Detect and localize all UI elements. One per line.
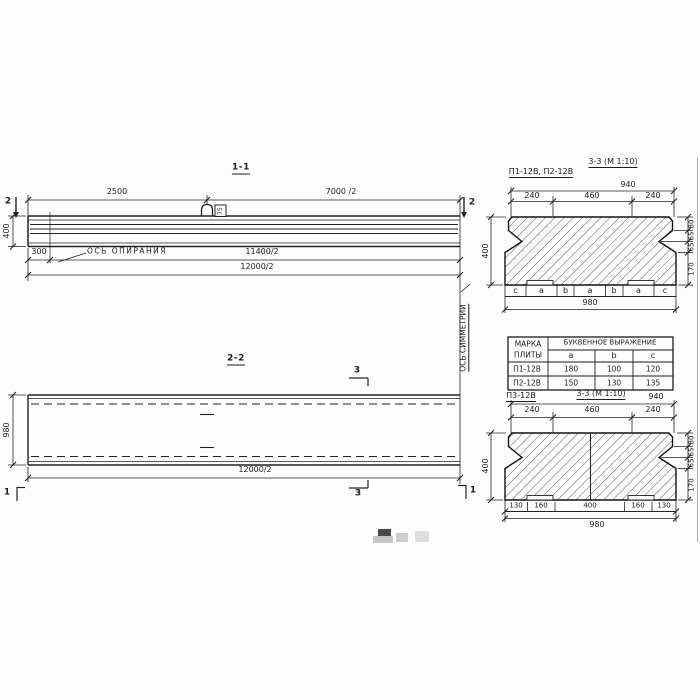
dim-240-p3a: 240 xyxy=(524,406,539,414)
dim-980-p3: 980 xyxy=(589,521,604,529)
dim-240-b: 240 xyxy=(645,192,660,200)
dim-160-a: 160 xyxy=(534,503,547,510)
dim-65b-p12: 65 xyxy=(689,243,696,252)
dim-11400-2: 11400/2 xyxy=(245,248,278,256)
section-3-3-title-top: 3-3 (М 1:10) xyxy=(588,158,637,168)
table-col-a: a xyxy=(569,352,574,360)
dim-400-p3: 400 xyxy=(482,458,490,473)
section-2-2-title: 2-2 xyxy=(227,355,245,366)
drawing-linework xyxy=(0,0,700,700)
table-col1-header-line1: МАРКА xyxy=(515,340,542,348)
dim-980-width: 980 xyxy=(3,422,11,437)
dim-160-b: 160 xyxy=(631,503,644,510)
letter-c1: c xyxy=(513,287,517,295)
dim-80-p3: 80 xyxy=(689,436,696,445)
dim-400-bottom: 400 xyxy=(583,503,596,510)
dim-65a-p3: 65 xyxy=(689,448,696,457)
table-row2-b: 130 xyxy=(607,379,621,387)
dim-130-a: 130 xyxy=(509,503,522,510)
table-row2-c: 135 xyxy=(646,379,660,387)
dim-65b-p3: 65 xyxy=(689,459,696,468)
dim-940-top: 940 xyxy=(620,181,635,189)
section-1-1-title: 1-1 xyxy=(232,164,250,175)
table-col-b: b xyxy=(611,352,616,360)
support-axis-label: ОСЬ ОПИРАНИЯ xyxy=(87,247,167,255)
dim-170-p12: 170 xyxy=(689,262,696,275)
dim-170-p3: 170 xyxy=(689,478,696,491)
letter-a1: a xyxy=(539,287,544,295)
table-row1-c: 120 xyxy=(646,365,660,373)
dim-80-p12: 80 xyxy=(689,220,696,229)
letter-c2: c xyxy=(663,287,667,295)
lifting-loop-icon xyxy=(202,205,213,217)
plate-mark-p3: П3-12В xyxy=(506,392,536,402)
dim-940-p3: 940 xyxy=(648,393,663,401)
plate-marks-p12: П1-12В, П2-12В xyxy=(509,168,573,178)
table-group-header: БУКВЕННОЕ ВЫРАЖЕНИЕ xyxy=(564,340,657,347)
table-col1-header-line2: ПЛИТЫ xyxy=(514,351,542,359)
dim-12000-2-bottom: 12000/2 xyxy=(238,466,271,474)
letter-a2: a xyxy=(588,287,593,295)
hatched-section-p12 xyxy=(505,217,676,285)
dim-7000-2: 7000 /2 xyxy=(326,188,357,196)
symmetry-axis-label: ОСЬ СИММЕТРИИ xyxy=(459,304,469,372)
dim-12000-2-top: 12000/2 xyxy=(240,263,273,271)
section-2-2-linework xyxy=(8,195,470,501)
dim-400-height: 400 xyxy=(3,223,11,238)
letter-b2: b xyxy=(611,287,616,295)
cut-marker-2-right: 2 xyxy=(469,199,475,208)
cut-marker-3-top: 3 xyxy=(354,367,360,376)
dim-400-p12: 400 xyxy=(482,243,490,258)
drawing-sheet: 1-1 2500 7000 /2 2 2 400 300 ОСЬ ОПИРАНИ… xyxy=(0,0,700,700)
dim-240-p3b: 240 xyxy=(645,406,660,414)
table-row2-mark: П2-12В xyxy=(513,379,541,387)
dim-460-p3: 460 xyxy=(584,406,599,414)
section-1-1-linework xyxy=(8,195,464,281)
dim-300: 300 xyxy=(31,248,46,256)
dim-2500: 2500 xyxy=(107,188,127,196)
dim-980-p12: 980 xyxy=(582,299,597,307)
letter-b1: b xyxy=(563,287,568,295)
dim-65a-p12: 65 xyxy=(689,232,696,241)
dim-130-b: 130 xyxy=(657,503,670,510)
cut-marker-3-bottom: 3 xyxy=(355,490,361,499)
dim-460-a: 460 xyxy=(584,192,599,200)
cut-marker-1-right: 1 xyxy=(470,487,476,496)
cut-marker-1-left: 1 xyxy=(4,489,10,498)
cut-marker-2-left: 2 xyxy=(5,198,11,207)
section-3-3-title-bottom: 3-3 (М 1:10) xyxy=(576,390,625,400)
table-row1-mark: П1-12В xyxy=(513,365,541,373)
table-row2-a: 150 xyxy=(564,379,578,387)
letter-a3: a xyxy=(636,287,641,295)
dim-240-a: 240 xyxy=(524,192,539,200)
table-row1-a: 180 xyxy=(564,365,578,373)
loop-tag: 75 xyxy=(218,207,224,215)
section-1-1-arrows xyxy=(13,212,467,218)
table-col-c: c xyxy=(651,352,655,360)
table-row1-b: 100 xyxy=(607,365,621,373)
